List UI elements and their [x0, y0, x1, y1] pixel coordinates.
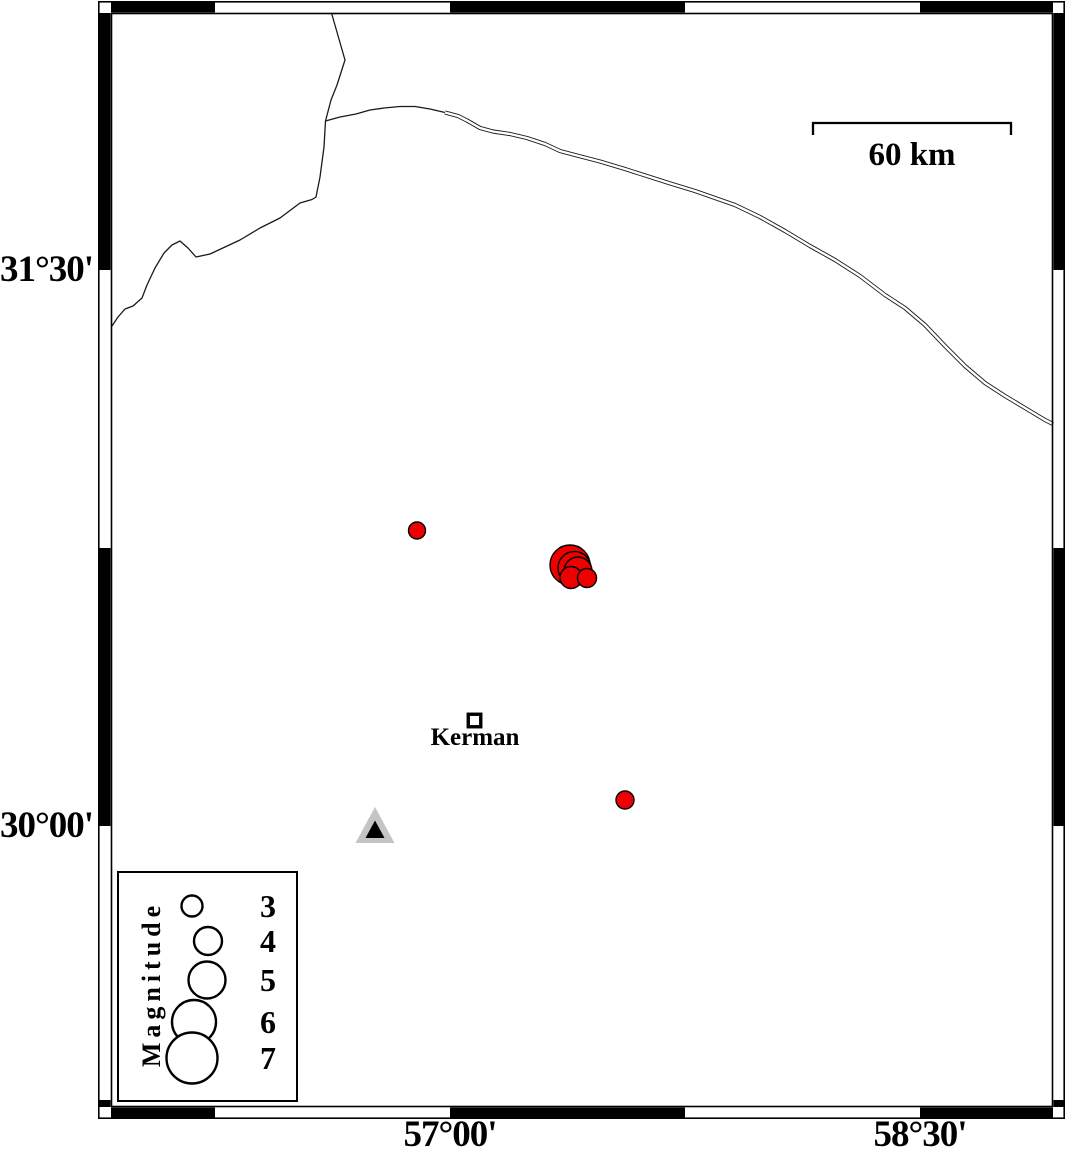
frame-top-segment [450, 3, 685, 13]
frame-right-segment [1054, 1100, 1064, 1107]
earthquake-marker [578, 569, 597, 588]
left-axis-label: 31°30' [0, 250, 92, 290]
frame-left-segment [100, 13, 111, 270]
legend-value-label: 7 [238, 1037, 298, 1079]
city-label: Kerman [395, 723, 555, 753]
bottom-axis-label: 57°00' [340, 1115, 560, 1154]
legend-title: Magnitude [137, 874, 167, 1094]
legend-size-circle [167, 1033, 218, 1084]
earthquake-marker [409, 522, 426, 539]
road-line [326, 107, 446, 122]
legend-size-circle [182, 896, 203, 917]
frame-top-segment [920, 3, 1053, 13]
legend-value-label: 4 [238, 920, 298, 962]
legend-value-label: 5 [238, 959, 298, 1001]
boundary-line [112, 13, 345, 326]
frame-right-segment [1054, 548, 1064, 826]
legend-size-circle [189, 962, 226, 999]
bottom-axis-label: 58°30' [810, 1115, 1030, 1154]
frame-left-segment [100, 1100, 111, 1107]
seismicity-map-figure: 60 km Kerman Magnitude 31°30'30°00'57°00… [0, 0, 1066, 1154]
frame-right-segment [1054, 13, 1064, 270]
scale-bar-label: 60 km [812, 137, 1012, 173]
legend-size-circle [194, 927, 222, 955]
scale-bar [813, 123, 1011, 135]
frame-bottom-segment [111, 1108, 215, 1118]
left-axis-label: 30°00' [0, 806, 92, 846]
frame-top-segment [111, 3, 215, 13]
frame-left-segment [100, 548, 111, 826]
earthquake-marker [616, 791, 634, 809]
